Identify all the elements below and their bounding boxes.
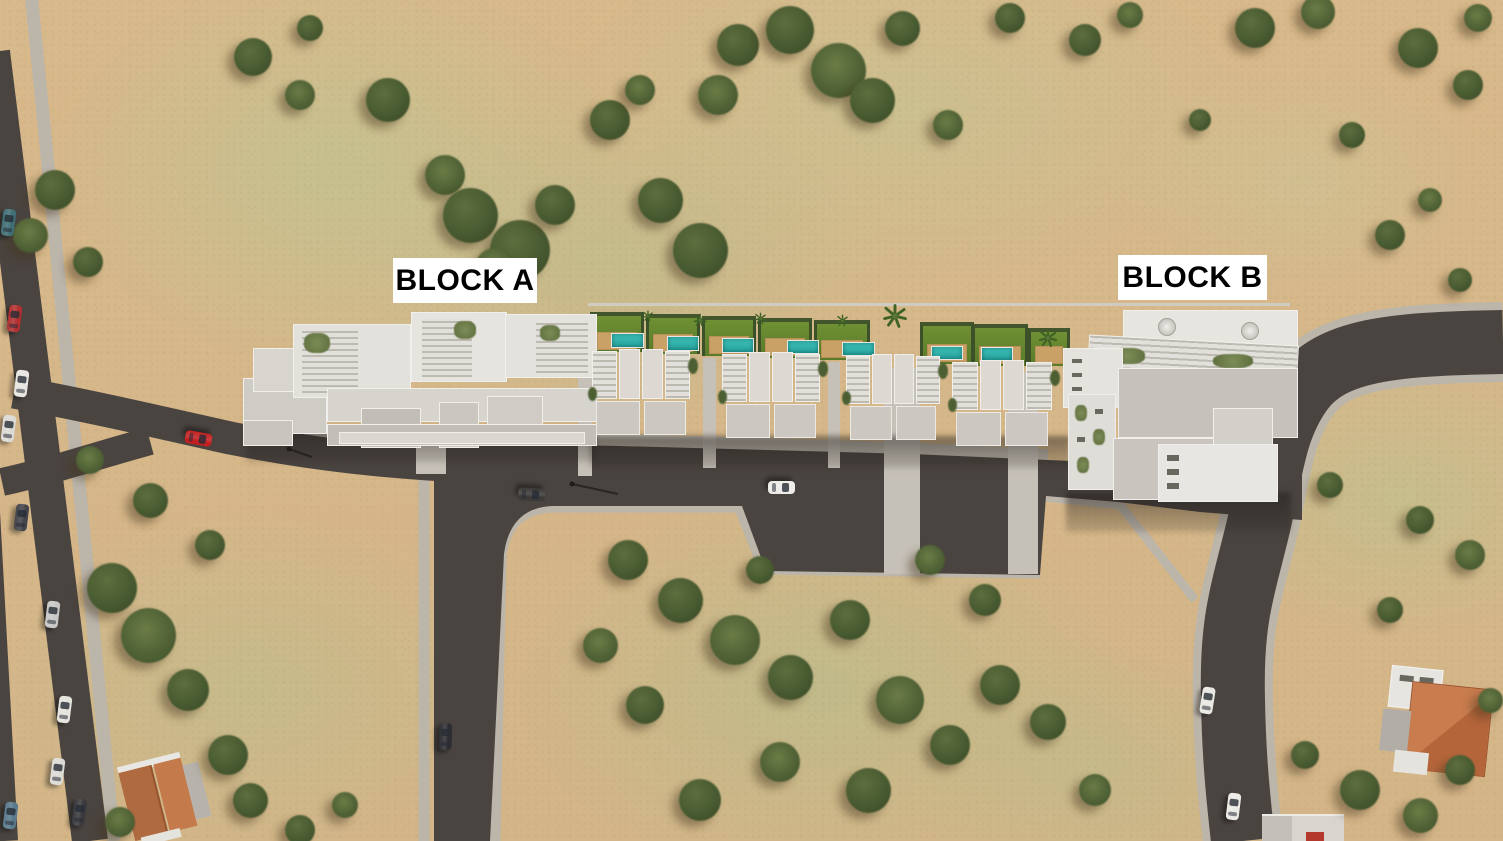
car — [71, 798, 87, 826]
car — [49, 757, 65, 785]
car — [44, 600, 60, 628]
car — [768, 481, 795, 494]
car — [13, 503, 29, 531]
car — [1225, 792, 1241, 820]
car — [0, 414, 16, 442]
site-plan-render: BLOCK A BLOCK B — [0, 0, 1503, 841]
car — [517, 487, 545, 501]
car — [6, 304, 22, 332]
cars — [0, 0, 1503, 841]
block-b-label: BLOCK B — [1118, 255, 1267, 300]
block-a-label: BLOCK A — [393, 258, 537, 303]
car — [56, 695, 72, 723]
car — [2, 801, 18, 829]
car — [184, 429, 213, 446]
car — [1198, 686, 1215, 715]
car — [13, 369, 29, 397]
car — [0, 208, 16, 236]
car — [438, 722, 452, 749]
